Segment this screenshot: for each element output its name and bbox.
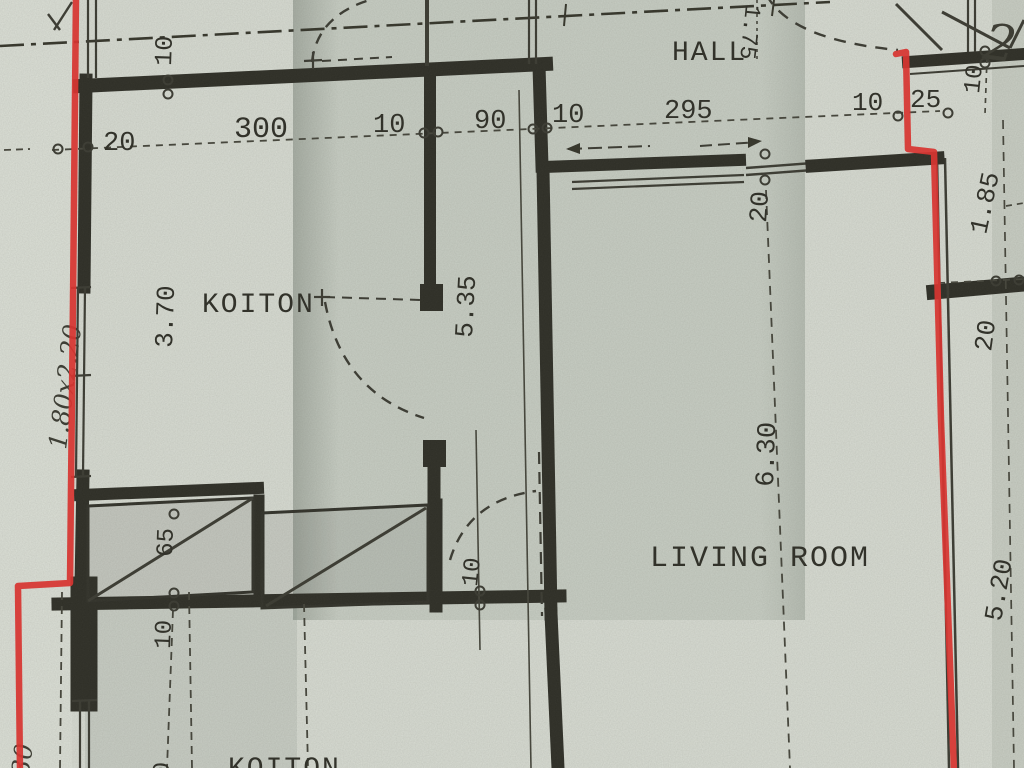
floor-plan-scan: HALL KOITON LIVING ROOM KOITON 20 300 10… bbox=[0, 0, 1024, 768]
scan-grain bbox=[0, 0, 1024, 768]
floor-plan-drawing: HALL KOITON LIVING ROOM KOITON 20 300 10… bbox=[0, 0, 1024, 768]
